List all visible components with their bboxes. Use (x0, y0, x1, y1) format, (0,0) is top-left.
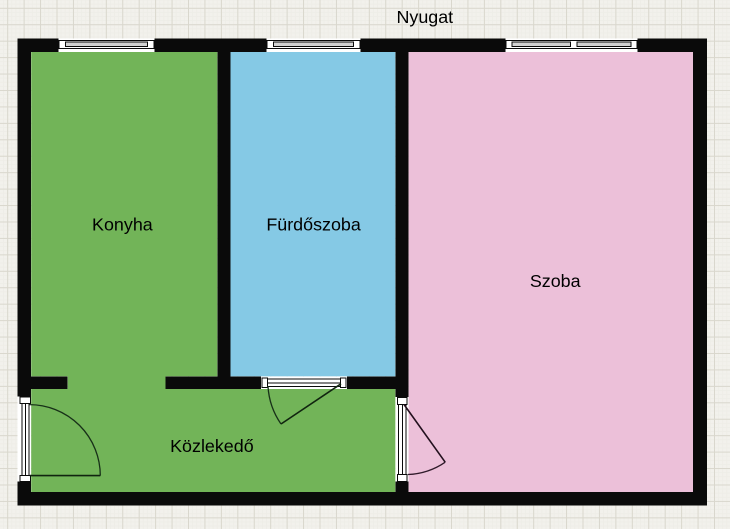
svg-text:Konyha: Konyha (92, 214, 153, 234)
svg-text:Nyugat: Nyugat (396, 7, 453, 27)
svg-text:Fürdőszoba: Fürdőszoba (266, 214, 361, 234)
svg-text:Szoba: Szoba (530, 271, 581, 291)
svg-text:Közlekedő: Közlekedő (170, 436, 254, 456)
